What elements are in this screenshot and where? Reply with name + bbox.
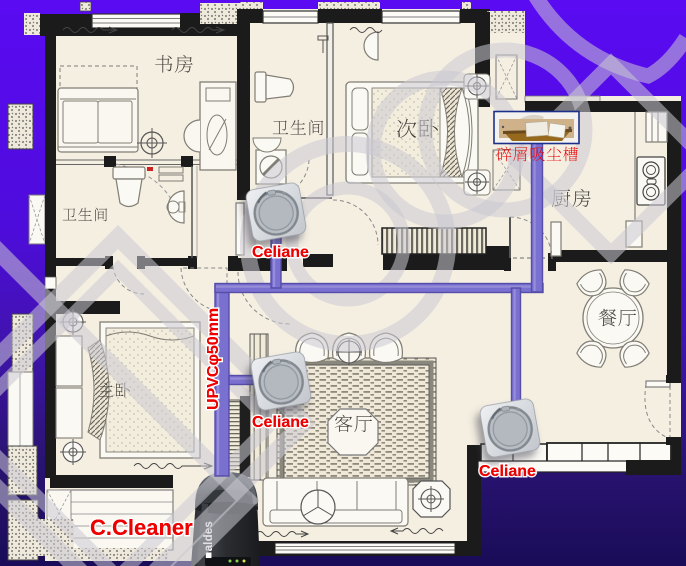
svg-text:Celiane: Celiane [479,463,536,480]
svg-text:Celiane: Celiane [252,244,309,261]
svg-text:C.Cleaner: C.Cleaner [90,515,193,540]
svg-text:UPVCφ50mm: UPVCφ50mm [205,308,222,410]
svg-text:Celiane: Celiane [252,414,309,431]
